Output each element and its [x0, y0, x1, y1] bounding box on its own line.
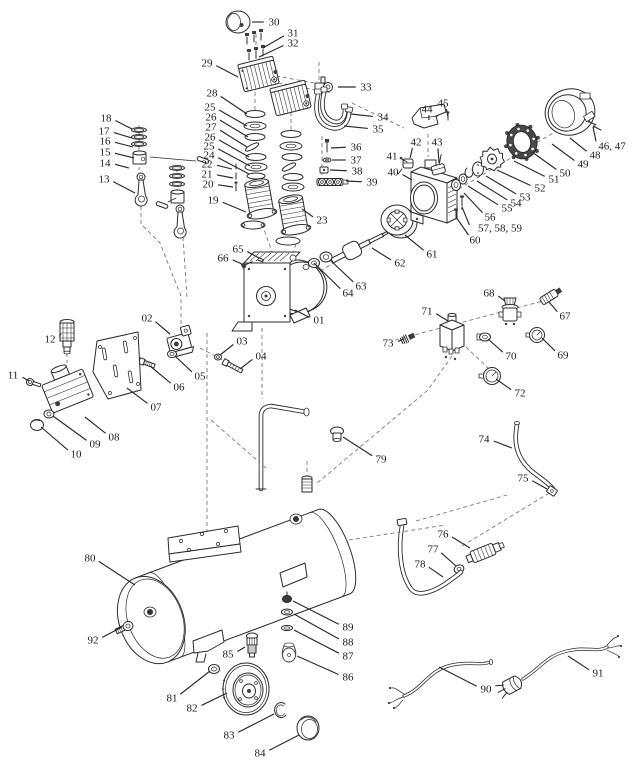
leader-line-51 [514, 161, 545, 176]
callout-label-45: 45 [438, 98, 450, 110]
leader-line-50 [532, 152, 556, 170]
gauge-72 [479, 368, 501, 385]
cylinder-gasket-1 [241, 221, 265, 229]
leader-line-79 [343, 437, 372, 456]
callout-label-77: 77 [428, 544, 440, 556]
leader-line-61 [405, 235, 424, 250]
leader-line-70 [488, 339, 503, 352]
callout-label-36: 36 [351, 142, 363, 154]
callout-label-82: 82 [187, 703, 198, 715]
leader-line-42 [410, 148, 412, 158]
callout-label-73: 73 [383, 338, 395, 350]
leader-line-84 [269, 735, 299, 750]
diagram-svg: 0102030405060708091011121314151617181920… [0, 0, 640, 768]
leader-line-71 [436, 314, 448, 321]
leader-line-02 [155, 322, 170, 334]
leader-line-91 [568, 656, 589, 670]
bolt-04 [222, 359, 243, 374]
leader-line-74 [494, 441, 512, 448]
leader-line-24 [218, 158, 249, 174]
washer-05 [168, 351, 177, 358]
leader-line-69 [542, 338, 555, 351]
leader-line-72 [496, 379, 511, 390]
air-tank [106, 476, 365, 673]
callout-label-71: 71 [422, 306, 433, 318]
callout-label-79: 79 [376, 454, 388, 466]
callout-label-85: 85 [223, 649, 235, 661]
leader-line-66 [233, 260, 242, 264]
callout-label-23: 23 [317, 215, 329, 227]
leader-line-52 [497, 170, 531, 185]
leader-line-03 [220, 344, 233, 355]
leader-line-29 [216, 66, 238, 77]
leader-line-15 [115, 153, 134, 158]
callout-label-19: 19 [208, 195, 220, 207]
air-filter [226, 11, 250, 33]
cylinder-head-1 [238, 56, 281, 92]
leader-line-16 [115, 142, 133, 147]
callout-label-35: 35 [373, 124, 385, 136]
leader-line-08 [85, 417, 106, 433]
callout-label-02: 02 [142, 313, 153, 325]
leader-line-13 [113, 182, 135, 193]
callout-label-51: 51 [549, 174, 560, 186]
leader-line-26 [219, 140, 249, 157]
leader-line-06 [150, 366, 171, 383]
callout-label-87: 87 [343, 651, 355, 663]
bolt-11 [26, 378, 42, 389]
discharge-tube-78 [397, 518, 461, 593]
hub-cap-84 [297, 716, 319, 740]
caster-86 [282, 643, 295, 662]
callout-label-63: 63 [356, 281, 368, 293]
retainer-ring-83 [275, 703, 286, 718]
callout-label-75: 75 [518, 473, 530, 485]
callout-label-64: 64 [343, 288, 355, 300]
leader-line-82 [201, 693, 227, 705]
callout-label-14: 14 [100, 158, 112, 170]
leader-line-63 [330, 260, 353, 282]
leader-line-67 [549, 302, 557, 312]
callout-label-38: 38 [352, 166, 364, 178]
callout-label-86: 86 [343, 672, 355, 684]
leader-line-88 [294, 614, 339, 639]
callout-label-34: 34 [378, 112, 390, 124]
callout-label-69: 69 [558, 350, 570, 362]
callout-label-32: 32 [288, 38, 299, 50]
tank-top-fitting [302, 476, 312, 492]
cylinder-1 [241, 177, 277, 221]
callout-label-62: 62 [395, 258, 406, 270]
exploded-parts-diagram: 0102030405060708091011121314151617181920… [0, 0, 640, 768]
callout-label-76: 76 [438, 529, 450, 541]
leader-line-90 [439, 667, 477, 686]
leader-line-62 [372, 248, 391, 260]
leader-line-80 [99, 561, 135, 585]
leader-line-25 [219, 110, 247, 126]
motor-end-cap [539, 82, 601, 141]
callout-label-25: 25 [204, 141, 216, 153]
leader-line-09 [53, 416, 87, 440]
wheel-82 [222, 663, 269, 715]
callout-label-55: 55 [502, 203, 514, 215]
callout-label-74: 74 [479, 434, 491, 446]
callout-label-33: 33 [361, 82, 373, 94]
washer-09 [44, 410, 54, 418]
leader-line-22 [217, 165, 232, 169]
callout-label-57-58-59: 57, 58, 59 [478, 223, 523, 235]
leader-line-46-47 [593, 127, 596, 141]
leader-line-21 [217, 175, 233, 178]
leader-line-27 [220, 130, 247, 147]
callout-label-50: 50 [560, 168, 572, 180]
check-valve-76 [465, 539, 506, 565]
leader-line-76 [452, 537, 470, 548]
callout-label-04: 04 [256, 351, 268, 363]
callout-label-61: 61 [427, 249, 438, 261]
transfer-tubes [315, 87, 353, 128]
leader-line-77 [441, 553, 456, 566]
leader-line-87 [294, 630, 339, 653]
fitting-73 [400, 331, 416, 344]
leader-line-45 [446, 109, 448, 117]
leader-line-17 [114, 133, 132, 138]
callout-label-29: 29 [202, 58, 214, 70]
callout-label-60: 60 [470, 235, 482, 247]
leader-line-78 [429, 567, 443, 577]
leader-line-54 [477, 181, 507, 200]
callout-label-49: 49 [578, 159, 590, 171]
callout-label-10: 10 [71, 449, 83, 461]
crankshaft [328, 225, 391, 267]
leader-line-36 [331, 147, 346, 148]
leader-line-25 [218, 149, 250, 166]
callout-label-52: 52 [535, 183, 546, 195]
bolt-06 [138, 358, 155, 369]
leader-line-48 [570, 138, 587, 151]
callout-label-18: 18 [101, 113, 113, 125]
leader-line-10 [41, 427, 68, 450]
leader-line-85 [237, 647, 245, 652]
leader-line-28 [221, 96, 247, 114]
piston-assembly-2 [156, 166, 186, 239]
regulator-68 [499, 298, 521, 325]
leader-line-49 [552, 144, 574, 160]
leader-line-38 [330, 170, 347, 171]
callout-label-65: 65 [233, 244, 245, 256]
callout-label-08: 08 [109, 432, 121, 444]
callout-label-07: 07 [151, 402, 163, 414]
callout-label-09: 09 [90, 439, 102, 451]
callout-label-66: 66 [218, 253, 230, 265]
intake-head-08 [37, 358, 93, 413]
callout-label-48: 48 [590, 150, 602, 162]
callout-label-05: 05 [195, 371, 207, 383]
leader-line-34 [351, 114, 373, 116]
leader-line-56 [464, 193, 483, 213]
callout-label-01: 01 [314, 315, 325, 327]
callout-label-83: 83 [224, 730, 236, 742]
callout-label-39: 39 [367, 177, 379, 189]
callout-label-46-47: 46, 47 [598, 141, 626, 153]
valve-plate-stack-2 [280, 131, 304, 192]
callout-label-89: 89 [343, 622, 355, 634]
motor-lead-wire-90 [388, 659, 493, 709]
callout-label-11: 11 [8, 370, 19, 382]
leader-line-19 [223, 202, 246, 212]
callout-label-78: 78 [415, 559, 427, 571]
fitting-67 [539, 286, 563, 305]
callout-label-80: 80 [85, 553, 97, 565]
leader-line-05 [176, 357, 192, 372]
callout-label-92: 92 [88, 635, 99, 647]
valve-plate-stack-1 [244, 111, 267, 180]
leader-line-26 [220, 120, 248, 137]
cylinder-head-2 [270, 80, 313, 116]
callout-label-68: 68 [484, 288, 496, 300]
gauge-69 [526, 328, 545, 343]
callout-label-40: 40 [388, 167, 400, 179]
cylinder-2 [275, 193, 311, 237]
callout-label-12: 12 [45, 334, 56, 346]
mount-plate-07 [93, 332, 141, 399]
leader-line-86 [297, 656, 339, 675]
leader-line-35 [344, 126, 368, 128]
callout-label-41: 41 [387, 151, 398, 163]
handle-79 [256, 406, 309, 489]
cylinder-gasket-2 [276, 237, 300, 245]
callout-label-44: 44 [422, 104, 434, 116]
leader-line-04 [240, 359, 252, 369]
callout-label-13: 13 [99, 174, 111, 186]
callout-label-28: 28 [207, 88, 219, 100]
motor-shaft-parts [452, 162, 484, 219]
callout-label-30: 30 [269, 17, 281, 29]
leader-line-57-58-59 [462, 207, 469, 225]
callout-label-67: 67 [560, 311, 572, 323]
callout-label-06: 06 [174, 382, 186, 394]
callout-label-72: 72 [515, 388, 526, 400]
leader-line-81 [180, 671, 210, 694]
callout-label-88: 88 [343, 637, 355, 649]
leader-line-53 [486, 176, 516, 194]
leader-line-39 [346, 181, 362, 182]
washer-81 [209, 665, 220, 674]
tank-bolt-hardware [282, 592, 293, 631]
check-valve-85 [247, 633, 258, 657]
callout-label-43: 43 [432, 137, 444, 149]
leader-line-20 [218, 185, 233, 187]
leader-line-43 [438, 148, 439, 163]
callout-label-15: 15 [100, 147, 112, 159]
plug-79 [331, 427, 344, 442]
leader-line-18 [115, 121, 132, 129]
callout-label-91: 91 [593, 668, 604, 680]
tube-nut-75 [546, 486, 557, 497]
cap-10 [31, 420, 44, 431]
leader-line-83 [238, 714, 274, 732]
callout-label-70: 70 [506, 351, 518, 363]
callout-label-90: 90 [481, 684, 493, 696]
callout-label-81: 81 [167, 693, 178, 705]
callout-label-84: 84 [255, 748, 267, 760]
leader-line-14 [115, 164, 129, 168]
intake-filter-12 [60, 320, 74, 354]
callout-label-17: 17 [99, 126, 111, 138]
pressure-switch-71 [440, 314, 464, 361]
callout-label-03: 03 [237, 336, 249, 348]
callout-label-42: 42 [411, 137, 422, 149]
